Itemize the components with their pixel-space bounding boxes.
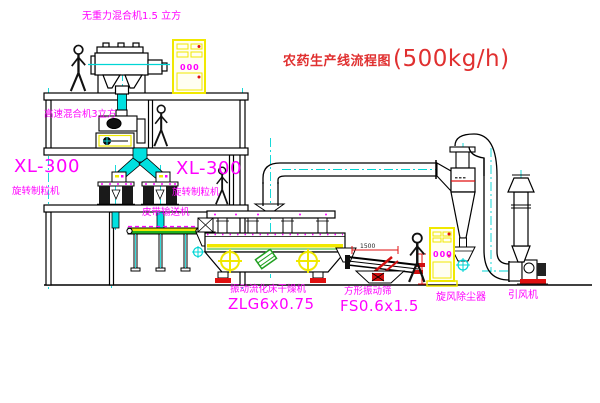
label-belt-conveyor: 皮带输送机	[142, 208, 190, 218]
label-granulator-model-right: XL-300	[176, 160, 242, 178]
label-cyclone: 旋风除尘器	[436, 293, 486, 303]
label-granulator-model-left: XL-300	[14, 158, 80, 176]
label-dryer-name: 振动流化床干燥机	[230, 285, 306, 295]
label-sieve-name: 方形振动筛	[344, 287, 392, 297]
person-top-floor	[71, 45, 85, 91]
dimension-1500: 1500	[360, 243, 375, 250]
title-chinese: 农药生产线流程图	[283, 50, 391, 72]
title-capacity: (500kg/h)	[393, 46, 510, 72]
cabinet-a-display: 000	[180, 63, 200, 72]
gravity-free-mixer	[88, 43, 170, 94]
label-gravity-free-mixer: 无重力混合机1.5 立方	[82, 12, 181, 22]
diagram-title: 农药生产线流程图 (500kg/h)	[283, 46, 510, 72]
vibrating-sieve	[345, 255, 425, 283]
person-second-floor	[154, 105, 167, 146]
exhaust-duct	[263, 160, 451, 206]
cabinet-b-display: 000	[433, 250, 453, 259]
label-granulator-name-right: 旋转制粒机	[172, 188, 220, 198]
process-flow-diagram: 农药生产线流程图 (500kg/h) 无重力混合机1.5 立方 高速混合机3立方…	[0, 0, 600, 403]
granulator-left	[97, 172, 135, 205]
label-high-speed-mixer: 高速混合机3立方	[44, 110, 117, 120]
induced-draft-fan	[509, 260, 548, 286]
label-fan: 引风机	[508, 291, 538, 301]
belt-conveyor	[127, 227, 201, 272]
label-granulator-name-left: 旋转制粒机	[12, 187, 60, 197]
fluid-bed-dryer	[192, 204, 356, 283]
label-dryer-model: ZLG6x0.75	[228, 297, 315, 312]
label-sieve-model: FS0.6x1.5	[340, 299, 419, 314]
exhaust-stack	[508, 175, 534, 262]
